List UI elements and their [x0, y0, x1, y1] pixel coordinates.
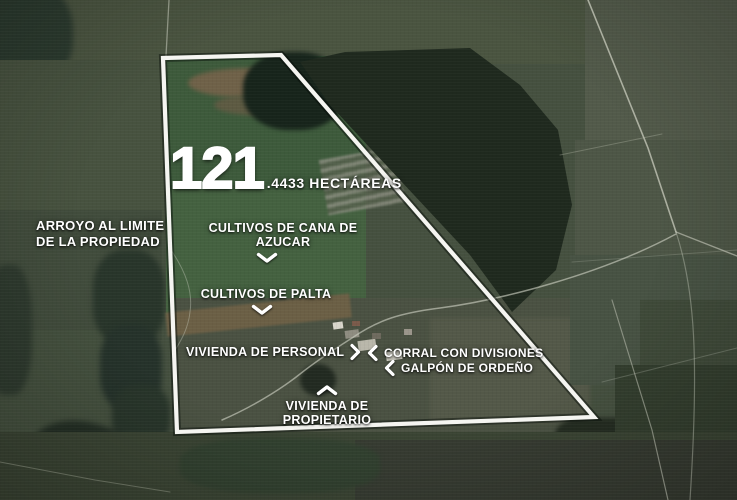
arroyo-line2: DE LA PROPIEDAD: [36, 234, 164, 250]
cana-label: CULTIVOS DE CANA DE AZUCAR: [187, 221, 379, 249]
annotation-arroyo: ARROYO AL LIMITE DE LA PROPIEDAD: [36, 218, 164, 249]
annotation-vivienda-personal: VIVIENDA DE PERSONAL: [186, 343, 361, 361]
chevron-down-icon: [256, 252, 278, 264]
area-suffix: .4433 HECTÁREAS: [267, 175, 402, 191]
terrain-right-low-dark: [640, 300, 737, 365]
galpon-label: GALPÓN DE ORDEÑO: [401, 362, 533, 375]
palta-label: CULTIVOS DE PALTA: [201, 287, 332, 301]
farm-building-roof-red: [352, 321, 360, 326]
terrain-left-field: [0, 60, 170, 220]
chevron-left-icon: [367, 344, 379, 362]
annotation-palta: CULTIVOS DE PALTA: [199, 287, 333, 316]
terrain-right-bottom-field: [615, 365, 737, 440]
corral-label: CORRAL CON DIVISIONES: [384, 347, 543, 360]
arroyo-line1: ARROYO AL LIMITE: [36, 218, 164, 234]
terrain-bottom-right-dark: [355, 440, 737, 500]
terrain-right-mid-field: [575, 140, 737, 270]
vivienda-personal-label: VIVIENDA DE PERSONAL: [186, 345, 344, 359]
annotation-galpon: GALPÓN DE ORDEÑO: [384, 359, 533, 377]
chevron-down-icon: [251, 304, 273, 316]
chevron-left-icon: [384, 359, 396, 377]
annotation-area-headline: 121 .4433 HECTÁREAS: [170, 144, 402, 194]
annotation-vivienda-propietario: VIVIENDA DE PROPIETARIO: [247, 384, 407, 427]
terrain-left-edge-woods: [0, 265, 32, 395]
farm-building-1: [333, 321, 344, 329]
terrain-bottom-mottle: [180, 438, 380, 493]
area-number: 121: [170, 144, 264, 194]
farm-building-5: [372, 333, 381, 339]
terrain-right-top-field: [585, 0, 737, 150]
farm-building-6: [404, 329, 412, 335]
annotation-cana: CULTIVOS DE CANA DE AZUCAR: [187, 221, 379, 264]
chevron-right-icon: [349, 343, 361, 361]
vivienda-propietario-label: VIVIENDA DE PROPIETARIO: [247, 399, 407, 427]
chevron-up-icon: [316, 384, 338, 396]
satellite-map: ARROYO AL LIMITE DE LA PROPIEDAD 121 .44…: [0, 0, 737, 500]
